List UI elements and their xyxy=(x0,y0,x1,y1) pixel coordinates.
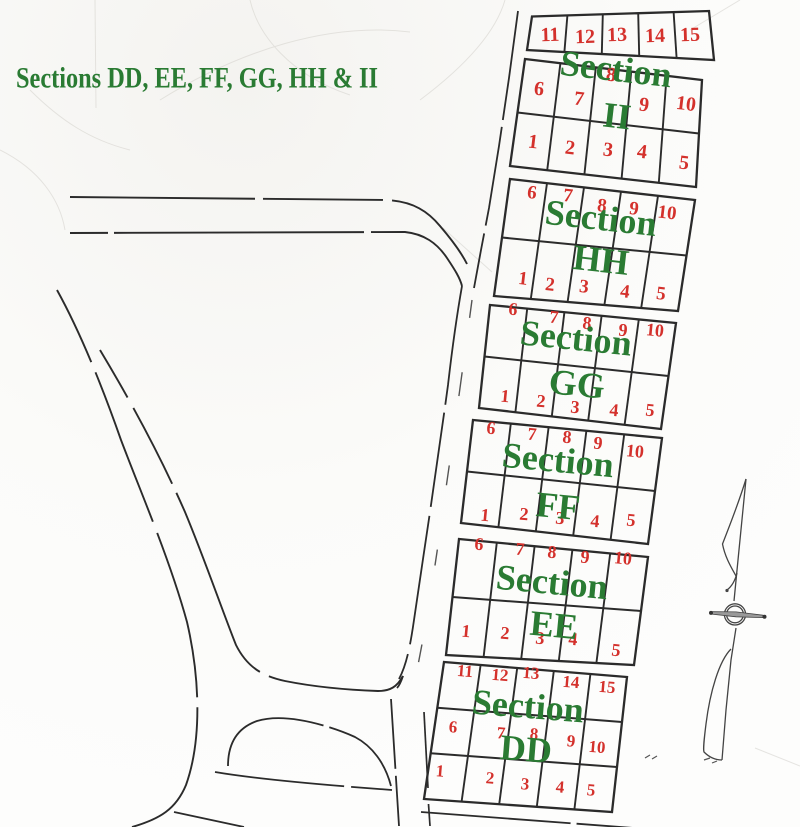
svg-text:4: 4 xyxy=(590,511,601,532)
svg-text:9: 9 xyxy=(566,731,576,751)
svg-text:3: 3 xyxy=(520,774,530,794)
svg-text:II: II xyxy=(601,95,633,138)
svg-text:Sections DD, EE, FF, GG, HH &: Sections DD, EE, FF, GG, HH & II xyxy=(16,62,378,95)
svg-text:13: 13 xyxy=(607,24,628,47)
svg-text:11: 11 xyxy=(456,661,474,681)
svg-text:DD: DD xyxy=(498,727,553,771)
svg-text:14: 14 xyxy=(645,25,666,48)
svg-text:1: 1 xyxy=(500,386,511,407)
svg-text:6: 6 xyxy=(474,534,485,555)
svg-text:5: 5 xyxy=(586,780,596,800)
svg-text:5: 5 xyxy=(645,400,656,421)
svg-text:10: 10 xyxy=(625,440,645,462)
svg-text:11: 11 xyxy=(540,24,560,47)
svg-text:15: 15 xyxy=(598,677,616,697)
svg-text:10: 10 xyxy=(656,201,677,224)
svg-text:HH: HH xyxy=(571,237,631,283)
svg-text:12: 12 xyxy=(491,665,509,685)
svg-text:10: 10 xyxy=(675,92,697,116)
svg-text:6: 6 xyxy=(486,418,497,439)
svg-text:2: 2 xyxy=(519,504,530,525)
svg-text:FF: FF xyxy=(534,484,582,528)
svg-text:15: 15 xyxy=(680,24,701,47)
svg-text:8: 8 xyxy=(547,542,558,563)
svg-text:GG: GG xyxy=(547,361,607,406)
svg-text:13: 13 xyxy=(522,663,540,683)
svg-text:5: 5 xyxy=(611,640,622,661)
svg-text:2: 2 xyxy=(536,391,547,412)
svg-text:7: 7 xyxy=(515,539,526,560)
svg-text:2: 2 xyxy=(485,768,495,788)
svg-text:10: 10 xyxy=(645,319,665,341)
svg-text:4: 4 xyxy=(609,400,620,421)
svg-text:2: 2 xyxy=(500,623,511,644)
svg-text:1: 1 xyxy=(461,621,472,642)
svg-text:10: 10 xyxy=(588,737,606,757)
svg-text:EE: EE xyxy=(528,603,580,647)
svg-text:5: 5 xyxy=(626,510,637,531)
svg-text:6: 6 xyxy=(508,299,519,320)
svg-text:1: 1 xyxy=(480,505,491,526)
svg-text:10: 10 xyxy=(613,547,633,569)
svg-text:6: 6 xyxy=(448,717,458,737)
svg-text:1: 1 xyxy=(435,761,445,781)
